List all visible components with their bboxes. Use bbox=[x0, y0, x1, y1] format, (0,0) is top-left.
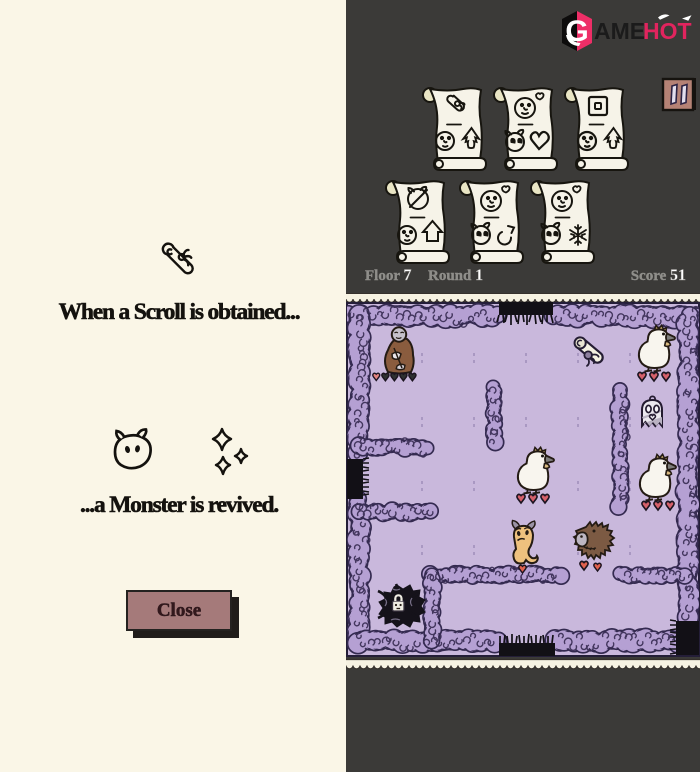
svg-text:HOT: HOT bbox=[643, 18, 692, 44]
svg-text:AME: AME bbox=[594, 18, 645, 44]
